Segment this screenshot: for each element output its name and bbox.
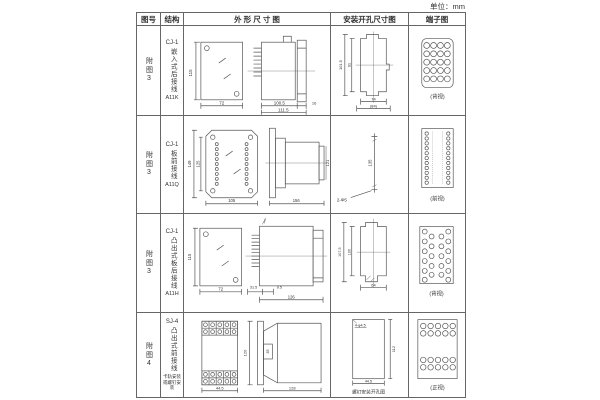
structure-text: 凸出式前接线: [169, 327, 176, 372]
model-text: SJ-4: [166, 319, 178, 325]
dim-label: 149: [187, 159, 192, 167]
outline-drawing-row3: 115 72 31.5 9.5 126: [184, 214, 331, 313]
dim-label: (84): [370, 103, 378, 108]
fig-no-text: 附图3: [144, 57, 154, 84]
code-text: A11K: [165, 95, 178, 101]
hole-marks: [351, 133, 378, 197]
outline-svg-row2: 149 125 105 156 121: [184, 116, 330, 214]
front-view: [193, 228, 242, 295]
dim-labels: 44.5 120 35 128: [216, 348, 296, 389]
dim-label: 16: [312, 100, 317, 105]
model-text: CJ-1: [166, 142, 179, 148]
dim-label: 9.5: [277, 285, 282, 289]
screw-marks: [219, 58, 231, 79]
dim-label: 74: [371, 96, 376, 101]
dim-label: 44.5: [216, 385, 225, 390]
mounting-svg-row1: 101.5 91 74 (84): [331, 26, 408, 116]
hole-label: 4-φ4.5: [355, 323, 366, 327]
fig-no-row4: 附图4: [137, 313, 161, 398]
fig-no-text: 附图4: [144, 342, 154, 369]
structure-text: 凸出式板后接线: [169, 237, 176, 290]
terminal-drawing-row3: (背视): [409, 214, 466, 313]
view-caption: (正视): [430, 383, 445, 391]
mounting-drawing-row2: 135 2-Φ5: [331, 116, 409, 214]
dim-labels: 115 72 31.5 9.5 126: [187, 253, 295, 299]
outline-svg-row4: 44.5 120 35 128: [184, 313, 330, 398]
outline-drawing-row1: 115 72 100.5 16 111.5: [184, 26, 331, 116]
structure-text: 板前接线: [169, 150, 176, 180]
dim-labels: 4-φ4.5 112 44.5 螺钉安装开孔图: [352, 323, 396, 395]
mounting-note: 卡轨安装或螺钉安装: [162, 374, 182, 390]
dim-labels: 149 125 105 156 121: [187, 158, 330, 202]
front-view: [194, 42, 243, 109]
view-caption: (背视): [429, 289, 444, 297]
dim-label: 111.5: [278, 107, 289, 112]
dim-label: 64: [371, 282, 376, 287]
header-structure: 结构: [161, 13, 184, 26]
structure-row1: CJ-1 嵌入式后接线 A11K: [161, 26, 184, 116]
header-fig-no: 图号: [137, 13, 161, 26]
terminal-block: [422, 38, 453, 87]
dim-label: 135: [367, 158, 372, 166]
structure-row4: SJ-4 凸出式前接线 卡轨安装或螺钉安装: [161, 313, 184, 398]
cutout-shape: [353, 319, 392, 385]
dimension-table: 图号 结构 外 形 尺 寸 图 安装开孔尺寸图 端子图 附图3 CJ-1 嵌入式…: [136, 12, 466, 398]
outline-drawing-row2: 149 125 105 156 121: [184, 116, 331, 214]
dim-label: 125: [195, 159, 200, 167]
mounting-svg-row3: 107.5 100 64: [331, 214, 408, 313]
terminal-svg-row1: (背视): [409, 26, 465, 116]
header-terminal: 端子图: [409, 13, 466, 26]
mounting-drawing-row3: 107.5 100 64: [331, 214, 409, 313]
terminal-svg-row3: (背视): [409, 214, 465, 313]
code-text: A11H: [165, 291, 178, 297]
dim-label: 121: [325, 158, 330, 165]
front-view: [202, 321, 238, 393]
model-text: CJ-1: [166, 40, 179, 46]
dim-label: 126: [288, 294, 296, 299]
terminal-drawing-row2: (前视): [409, 116, 466, 214]
fig-no-row2: 附图3: [137, 116, 161, 214]
fig-no-text: 附图3: [144, 250, 154, 277]
header-mounting: 安装开孔尺寸图: [331, 13, 409, 26]
terminal-drawing-row4: (正视): [409, 313, 466, 398]
dim-labels: 101.5 91 74 (84): [338, 59, 378, 108]
code-text: A11Q: [165, 182, 179, 188]
structure-row2: CJ-1 板前接线 A11Q: [161, 116, 184, 214]
mount-caption: 螺钉安装开孔图: [352, 388, 385, 395]
dim-label: 72: [218, 286, 223, 291]
dim-label: 156: [293, 198, 301, 203]
dim-label: 107.5: [338, 247, 342, 256]
dim-label: 112: [391, 345, 396, 351]
terminal-block: [422, 128, 453, 187]
dim-label: 115: [187, 253, 192, 260]
dim-label: 101.5: [338, 59, 343, 70]
outline-svg-row1: 115 72 100.5 16 111.5: [184, 26, 330, 116]
view-caption: (背视): [430, 92, 445, 100]
structure-text: 嵌入式后接线: [169, 48, 176, 93]
terminal-block: [418, 319, 457, 378]
side-view: [248, 321, 321, 393]
terminal-svg-row4: (正视): [409, 313, 465, 398]
dim-label: 100.5: [274, 100, 286, 105]
structure-row3: CJ-1 凸出式板后接线 A11H: [161, 214, 184, 313]
front-view: [192, 130, 258, 205]
outline-svg-row3: 115 72 31.5 9.5 126: [184, 214, 330, 313]
dim-label: 91: [346, 62, 351, 66]
terminal-drawing-row1: (背视): [409, 26, 466, 116]
dim-label: 44.5: [365, 379, 372, 383]
fig-no-row3: 附图3: [137, 214, 161, 313]
outline-drawing-row4: 44.5 120 35 128: [184, 313, 331, 398]
terminal-pins: [252, 235, 260, 266]
fig-no-row1: 附图3: [137, 26, 161, 116]
unit-label: 单位：mm: [430, 1, 465, 12]
header-outline: 外 形 尺 寸 图: [184, 13, 331, 26]
dim-label: 120: [243, 348, 248, 355]
terminal-block: [420, 226, 453, 283]
dim-label: 115: [188, 68, 193, 76]
hole-label: 2-Φ5: [337, 197, 347, 202]
mounting-drawing-row1: 101.5 91 74 (84): [331, 26, 409, 116]
screw-marks: [226, 151, 241, 174]
terminal-svg-row2: (前视): [409, 116, 465, 214]
terminal-pins: [254, 48, 262, 76]
dim-label: 35: [266, 349, 270, 353]
fig-no-text: 附图3: [144, 151, 154, 178]
document-page: { "unit_label": "单位：mm", "headers": { "f…: [0, 0, 600, 400]
dim-label: 72: [219, 100, 224, 105]
dim-label: 31.5: [250, 285, 257, 289]
side-view: [265, 128, 327, 205]
dim-label: 105: [228, 198, 236, 203]
screw-marks: [217, 245, 229, 266]
side-view: [246, 218, 327, 302]
dim-label: 128: [289, 385, 296, 390]
model-text: CJ-1: [166, 229, 179, 235]
dim-label: 100: [347, 249, 351, 255]
mounting-drawing-row4: 4-φ4.5 112 44.5 螺钉安装开孔图: [331, 313, 409, 398]
mounting-svg-row4: 4-φ4.5 112 44.5 螺钉安装开孔图: [331, 313, 408, 398]
cutout-shape: [343, 31, 393, 111]
mounting-svg-row2: 135 2-Φ5: [331, 116, 408, 214]
view-caption: (前视): [430, 194, 445, 202]
